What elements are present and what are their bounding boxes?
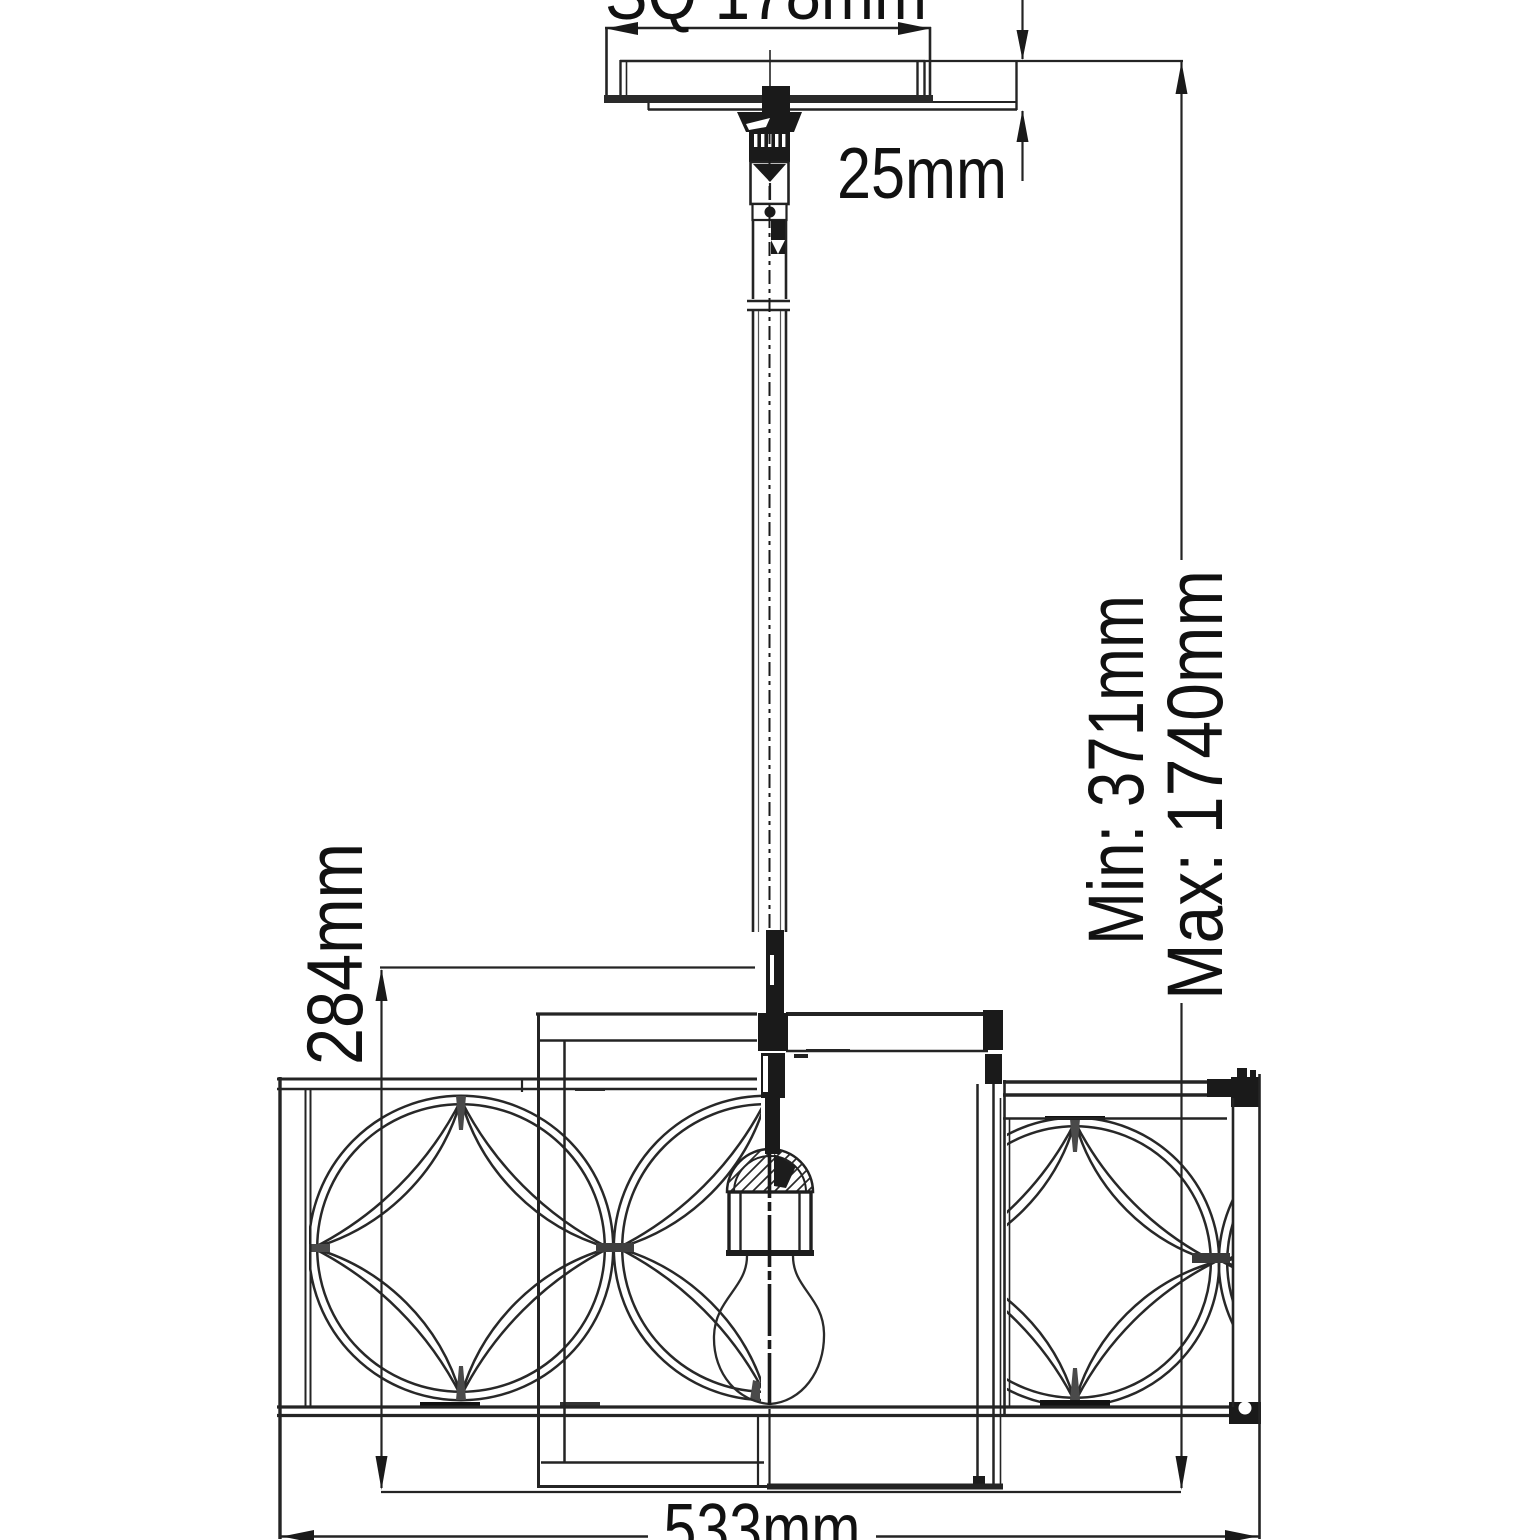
svg-text:284mm: 284mm bbox=[290, 843, 379, 1065]
svg-text:SQ 178mm: SQ 178mm bbox=[605, 0, 927, 35]
svg-text:Min: 371mm: Min: 371mm bbox=[1071, 595, 1160, 945]
svg-text:25mm: 25mm bbox=[837, 134, 1007, 214]
svg-text:Max: 1740mm: Max: 1740mm bbox=[1150, 570, 1239, 1000]
svg-text:533mm: 533mm bbox=[664, 1490, 861, 1540]
